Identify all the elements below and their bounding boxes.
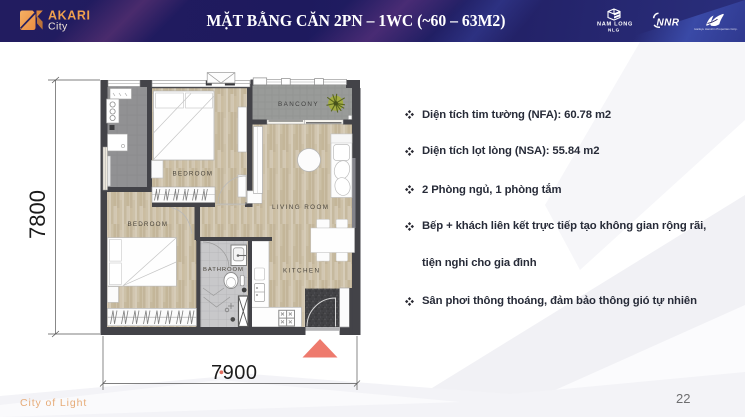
svg-text:BEDROOM: BEDROOM	[173, 171, 214, 178]
svg-text:7800: 7800	[25, 190, 50, 239]
svg-text:LIVING ROOM: LIVING ROOM	[272, 204, 329, 211]
svg-text:BATHROOM: BATHROOM	[203, 267, 244, 273]
svg-text:BANCONY: BANCONY	[278, 101, 319, 108]
svg-text:7900: 7900	[211, 362, 257, 384]
svg-text:BEDROOM: BEDROOM	[128, 221, 169, 228]
svg-text:KITCHEN: KITCHEN	[283, 268, 320, 275]
